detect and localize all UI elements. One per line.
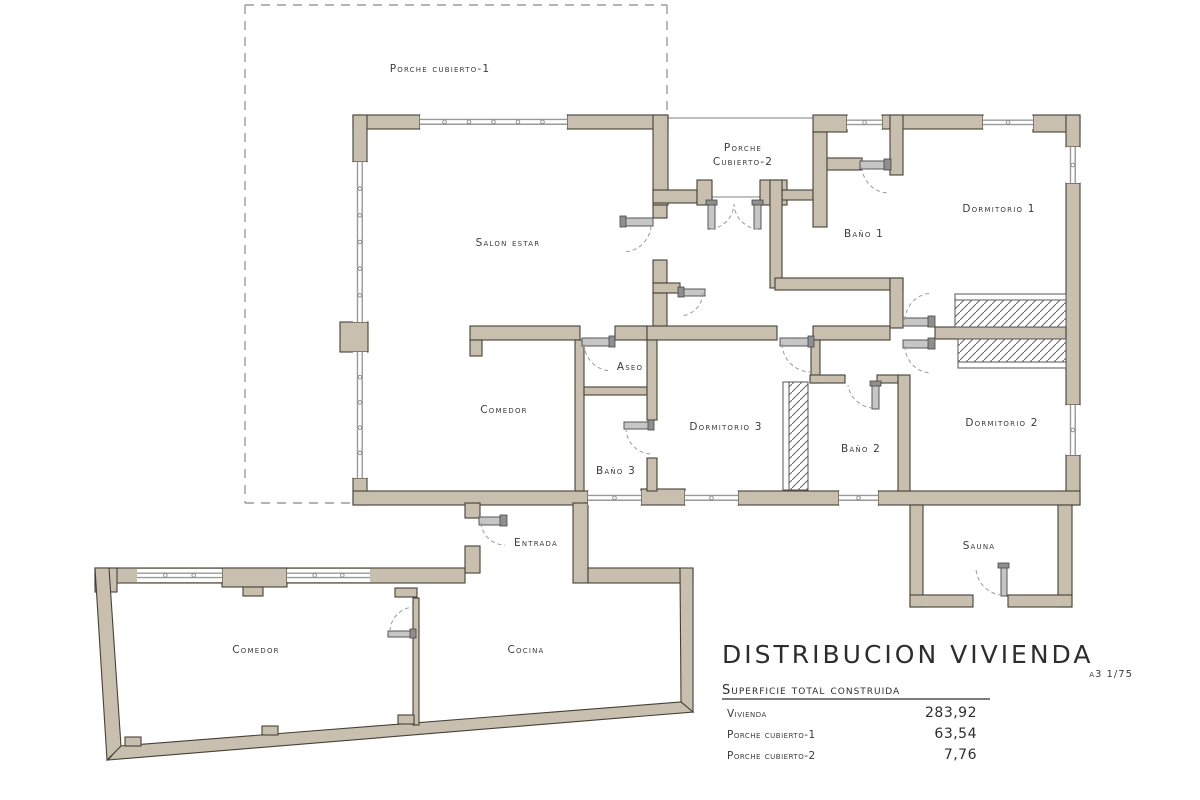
row-value-porche-1: 63,54 [934, 726, 977, 742]
window [1066, 405, 1080, 455]
window [983, 116, 1033, 129]
label-dormitorio-2: Dormitorio 2 [965, 417, 1038, 429]
label-porche-cubierto-2-line2: Cubierto-2 [713, 156, 773, 168]
label-sauna: Sauna [963, 540, 996, 552]
window [353, 352, 367, 478]
label-dormitorio-3: Dormitorio 3 [689, 421, 762, 433]
door-bano3 [624, 420, 654, 454]
row-label-porche-2: Porche cubierto-2 [727, 750, 816, 762]
window [685, 491, 738, 505]
closet-dormitorio3 [783, 382, 808, 490]
door-dormitorio3 [780, 336, 814, 372]
drawing-scale: a3 1/75 [1089, 669, 1133, 680]
door-bano1 [860, 159, 891, 193]
door-salon [620, 216, 653, 252]
row-label-porche-1: Porche cubierto-1 [727, 729, 816, 741]
label-salon-estar: Salon estar [476, 237, 541, 249]
window [287, 569, 370, 582]
door-hall [678, 287, 705, 316]
label-porche-cubierto-1: Porche cubierto-1 [390, 63, 491, 75]
window [588, 491, 641, 505]
floor-plan-canvas: Porche cubierto-1 Salon estar Porche Cub… [0, 0, 1200, 800]
label-entrada: Entrada [514, 537, 558, 549]
row-label-vivienda: Vivienda [727, 708, 767, 720]
door-aseo [582, 336, 615, 371]
label-bano-1: Baño 1 [844, 228, 884, 240]
door-dormitorio2 [903, 338, 935, 373]
door-porche2-double [706, 200, 763, 229]
label-comedor: Comedor [480, 404, 527, 416]
row-value-vivienda: 283,92 [925, 705, 977, 721]
label-bano-3: Baño 3 [596, 465, 636, 477]
door-dormitorio1 [903, 293, 935, 327]
door-cocina [388, 607, 416, 638]
surface-table-row: Porche cubierto-2 7,76 [727, 747, 977, 763]
floor-plan-page: Porche cubierto-1 Salon estar Porche Cub… [0, 0, 1200, 800]
label-bano-2: Baño 2 [841, 443, 881, 455]
window [420, 115, 567, 129]
label-comedor-bajo: Comedor [232, 644, 279, 656]
surface-table-heading: Superficie total construida [722, 683, 900, 698]
door-bano2 [848, 381, 881, 409]
title-block: DISTRIBUCION VIVIENDA a3 1/75 Superficie… [722, 640, 1133, 763]
label-aseo: Aseo [617, 361, 643, 373]
window [353, 162, 367, 322]
door-entrada [479, 515, 507, 545]
porch1-dashed-outline [245, 5, 667, 503]
closet-dormitorio1 [955, 294, 1066, 327]
windows [137, 115, 1080, 582]
surface-table-row: Vivienda 283,92 [727, 705, 977, 721]
row-value-porche-2: 7,76 [944, 747, 977, 763]
window [839, 491, 878, 505]
label-porche-cubierto-2-line1: Porche [724, 142, 762, 154]
door-sauna [976, 563, 1009, 596]
closet-dormitorio2 [958, 339, 1066, 368]
surface-table-row: Porche cubierto-1 63,54 [727, 726, 977, 742]
window [1066, 147, 1080, 183]
label-cocina: Cocina [507, 644, 544, 656]
label-dormitorio-1: Dormitorio 1 [962, 203, 1035, 215]
drawing-title: DISTRIBUCION VIVIENDA [722, 640, 1093, 669]
window [847, 116, 882, 129]
window [137, 569, 222, 582]
